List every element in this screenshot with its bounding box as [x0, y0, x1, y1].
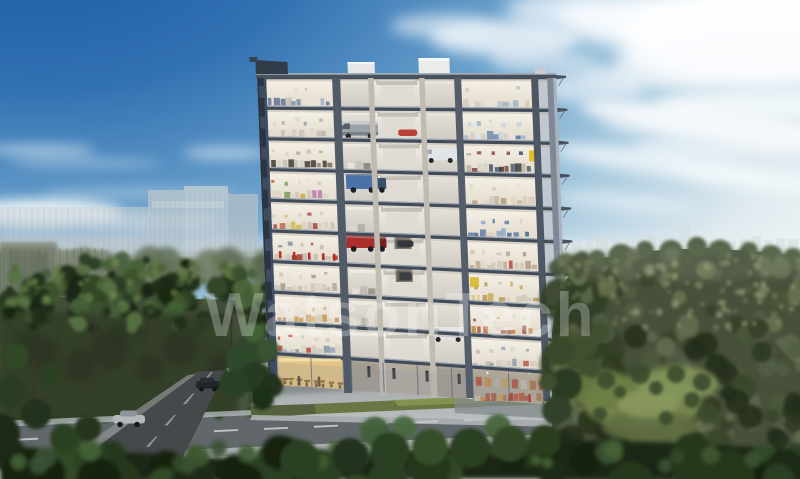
svg-text:WatsonTech: WatsonTech	[205, 281, 597, 350]
